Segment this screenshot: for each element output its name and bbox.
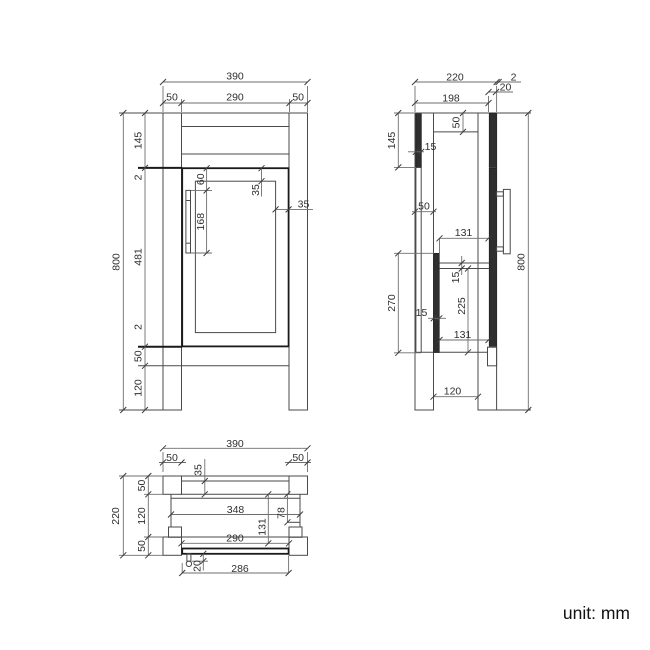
dim-plan-back-leg: 50 <box>136 480 148 492</box>
dim-front-overall-width: 390 <box>226 71 244 83</box>
technical-drawing-page: 390 50 290 50 800 145 2 481 2 50 120 60 … <box>0 0 650 650</box>
plan-left-side-panel <box>169 527 182 537</box>
dim-front-left-leg: 50 <box>166 92 178 104</box>
front-door-panel <box>182 168 288 346</box>
dim-side-leg-depth: 50 <box>418 201 430 213</box>
dim-front-opening: 290 <box>226 92 244 104</box>
dim-front-handle-offset: 60 <box>195 173 207 185</box>
dim-side-lower-shelf: 131 <box>454 329 472 341</box>
dim-plan-right-notch: 78 <box>275 507 287 519</box>
front-door-handle <box>186 190 191 253</box>
dim-plan-legs-clear: 120 <box>136 507 148 525</box>
plan-back-left-leg <box>163 476 182 494</box>
unit-note: unit: mm <box>540 603 630 624</box>
dim-side-overall-depth: 220 <box>446 72 464 84</box>
dim-front-overall-height: 800 <box>111 253 123 271</box>
dim-front-right-leg: 50 <box>292 92 304 104</box>
plan-door-panel <box>182 549 288 554</box>
dim-plan-interior-width: 348 <box>227 504 245 516</box>
dim-plan-back-rail: 35 <box>193 464 205 476</box>
dim-front-door-stile: 35 <box>298 199 310 211</box>
side-view: 220 2 20 198 145 15 50 50 131 15 225 270… <box>386 72 532 414</box>
plan-back-right-leg <box>289 476 308 494</box>
dim-plan-right-leg: 50 <box>292 452 304 464</box>
side-front-apron <box>489 113 496 168</box>
dim-side-niche-opening: 225 <box>456 297 468 315</box>
dim-side-divider: 15 <box>416 307 428 319</box>
front-door-inner-panel <box>195 181 275 332</box>
dim-side-back-panel: 15 <box>425 141 437 153</box>
dim-plan-left-leg: 50 <box>166 452 178 464</box>
dim-plan-overall-depth: 220 <box>110 507 122 525</box>
dim-side-upper-shelf: 131 <box>455 227 473 239</box>
dim-front-top-gap: 2 <box>133 174 145 180</box>
front-linework <box>119 113 308 410</box>
dim-side-door-thickness: 20 <box>500 82 512 94</box>
dim-front-leg-clearance: 120 <box>132 379 144 397</box>
front-dimension-labels: 390 50 290 50 800 145 2 481 2 50 120 60 … <box>111 71 310 397</box>
dim-front-bottom-rail: 50 <box>132 350 144 362</box>
dim-plan-front-leg: 50 <box>136 540 148 552</box>
dim-front-top-band: 145 <box>132 132 144 150</box>
side-door-handle <box>496 189 510 253</box>
dim-side-front-gap: 2 <box>511 72 517 84</box>
side-linework <box>415 113 531 410</box>
dim-side-body-depth: 198 <box>442 93 460 105</box>
plan-view: 390 50 50 35 220 50 120 50 348 78 131 29… <box>110 438 311 576</box>
side-dimension-labels: 220 2 20 198 145 15 50 50 131 15 225 270… <box>386 72 528 398</box>
dim-side-top-band: 145 <box>386 132 398 150</box>
side-door-edge <box>489 168 496 346</box>
dim-side-shelf-thickness: 15 <box>450 272 462 284</box>
dim-front-handle-length: 168 <box>195 213 207 231</box>
dim-side-overall-height: 800 <box>516 253 528 271</box>
dim-plan-interior-depth: 131 <box>256 518 268 536</box>
plan-front-right-leg <box>289 537 308 555</box>
dim-plan-door-width: 286 <box>231 563 249 575</box>
front-right-leg <box>289 113 308 410</box>
dim-side-countertop: 50 <box>451 117 463 129</box>
dim-plan-opening-width: 290 <box>226 533 244 545</box>
plan-right-side-panel <box>289 527 302 537</box>
vanity-dimension-drawing: 390 50 290 50 800 145 2 481 2 50 120 60 … <box>0 0 650 650</box>
dim-side-legs-span: 120 <box>444 386 462 398</box>
dim-front-bottom-gap: 2 <box>133 324 145 330</box>
side-divider-panel <box>434 253 440 352</box>
plan-linework <box>163 476 308 567</box>
dim-plan-overall-width: 390 <box>226 438 244 450</box>
dim-front-door-height: 481 <box>132 248 144 266</box>
dim-plan-handle-projection: 20 <box>191 560 203 572</box>
dim-front-door-top-rail: 35 <box>250 184 262 196</box>
front-dimension-lines <box>120 79 313 413</box>
front-view: 390 50 290 50 800 145 2 481 2 50 120 60 … <box>111 71 314 414</box>
dim-side-niche-height: 270 <box>386 294 398 312</box>
side-bottom-rail <box>488 347 497 366</box>
